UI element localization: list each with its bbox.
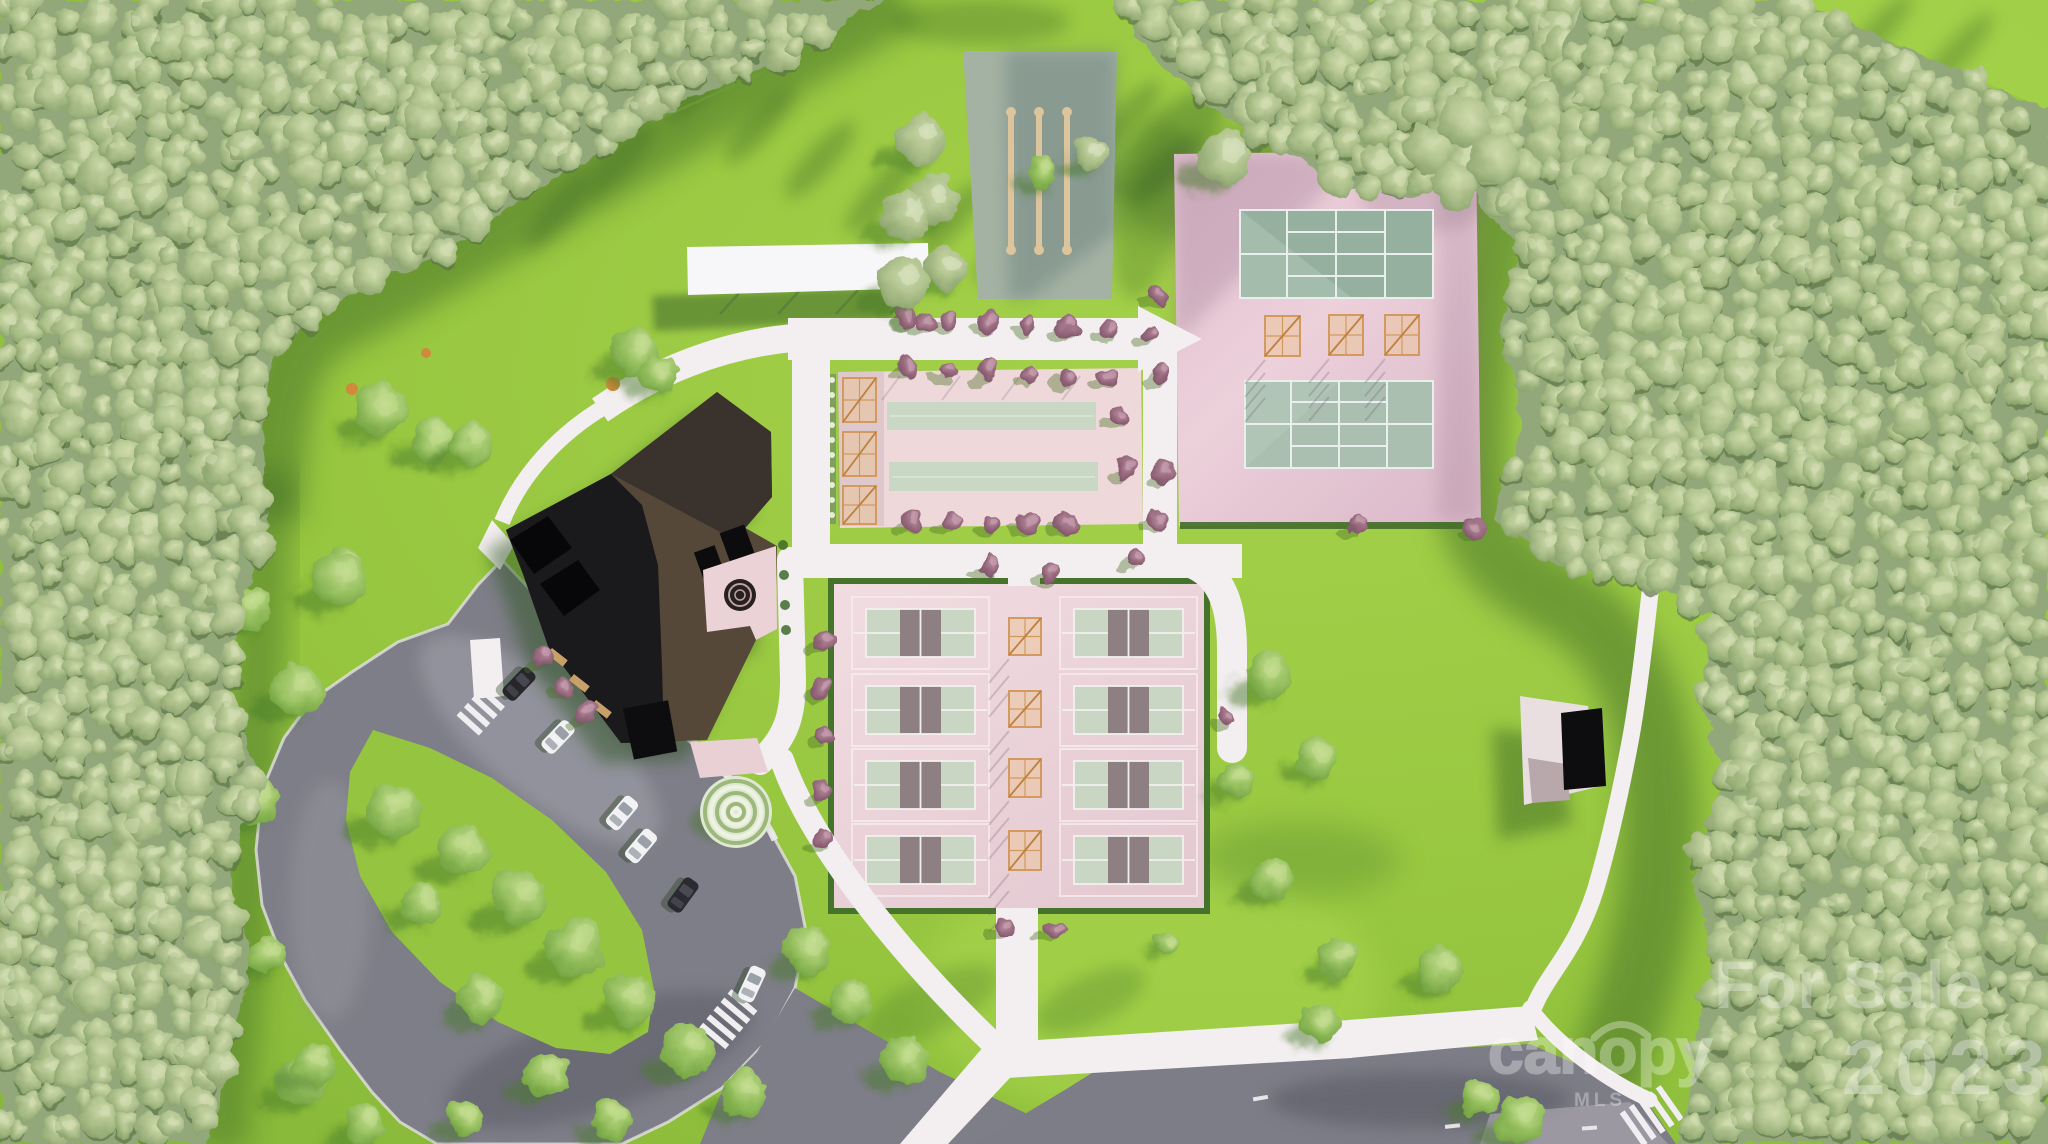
svg-text:For Sale: For Sale <box>1714 947 1982 1023</box>
svg-text:2023: 2023 <box>1842 1023 2048 1111</box>
svg-text:MLS: MLS <box>1574 1090 1626 1111</box>
svg-text:canopy: canopy <box>1488 1015 1712 1087</box>
